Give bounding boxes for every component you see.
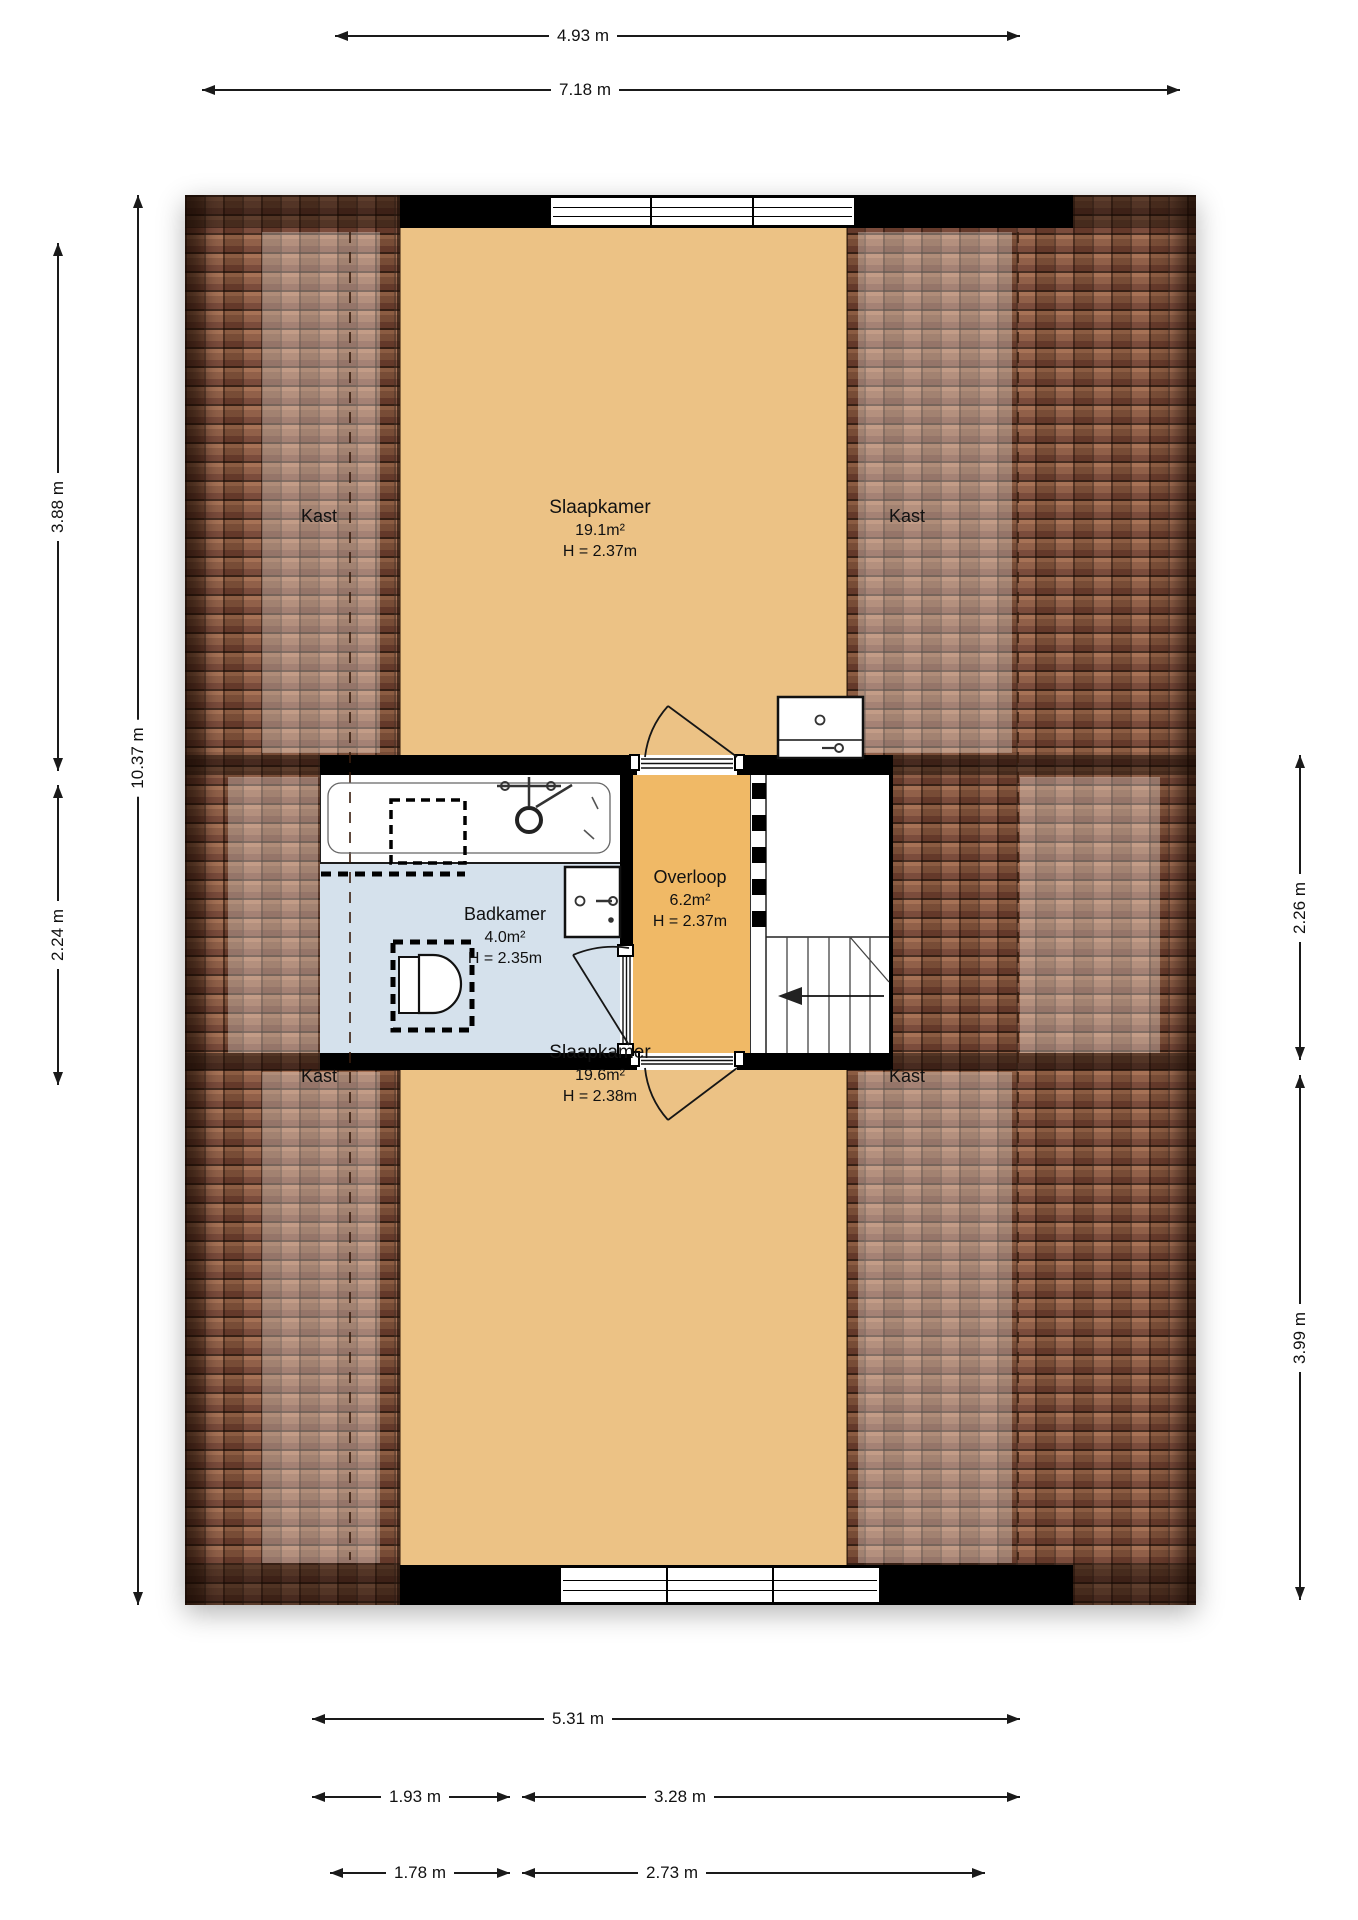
dimension-bottom-row2-left: 1.93 m (312, 1790, 510, 1804)
room-label-overloop: Overloop 6.2m² H = 2.37m (653, 866, 727, 932)
room-height: H = 2.37m (653, 911, 727, 932)
room-height: H = 2.37m (549, 541, 650, 562)
low-ceiling-dashes (321, 800, 465, 874)
dimension-left-total: 10.37 m (131, 195, 145, 1605)
dimension-top-outer: 7.18 m (202, 83, 1180, 97)
room-area: 19.6m² (549, 1065, 650, 1086)
room-label-badkamer: Badkamer 4.0m² H = 2.35m (464, 903, 546, 969)
dimension-right-middle: 2.26 m (1293, 755, 1307, 1060)
door-bottom-bedroom (645, 1068, 737, 1120)
dimension-bottom-row2-right: 3.28 m (522, 1790, 1020, 1804)
dimension-bottom-row3-left: 1.78 m (330, 1866, 510, 1880)
sink-cabinet-icon (778, 697, 863, 758)
washbasin-icon (565, 867, 620, 937)
plan-symbols-layer (0, 0, 1358, 1920)
floor-plan-page: Slaapkamer 19.1m² H = 2.37m Slaapkamer 1… (0, 0, 1358, 1920)
dimension-left-top: 3.88 m (51, 243, 65, 771)
stairs (752, 775, 889, 1053)
door-bathroom (573, 947, 629, 1045)
bathtub-fixtures-icon (328, 777, 610, 853)
room-area: 19.1m² (549, 520, 650, 541)
room-area: 6.2m² (653, 890, 727, 911)
room-label-slaapkamer-top: Slaapkamer 19.1m² H = 2.37m (549, 495, 650, 562)
dimension-top-inner: 4.93 m (335, 29, 1020, 43)
closet-label-bottom-left: Kast (301, 1066, 337, 1087)
dimension-bottom-row3-right: 2.73 m (522, 1866, 985, 1880)
toilet-icon (393, 942, 472, 1030)
dimension-bottom-row1: 5.31 m (312, 1712, 1020, 1726)
room-label-slaapkamer-bottom: Slaapkamer 19.6m² H = 2.38m (549, 1040, 650, 1107)
room-height: H = 2.38m (549, 1086, 650, 1107)
room-name: Slaapkamer (549, 495, 650, 520)
closet-label-top-left: Kast (301, 506, 337, 527)
room-height: H = 2.35m (464, 948, 546, 969)
door-top-bedroom (645, 706, 737, 757)
stairs-direction-arrow-icon (778, 987, 802, 1005)
dimension-left-middle: 2.24 m (51, 785, 65, 1085)
room-name: Badkamer (464, 903, 546, 927)
room-name: Overloop (653, 866, 727, 890)
room-name: Slaapkamer (549, 1040, 650, 1065)
closet-label-top-right: Kast (889, 506, 925, 527)
closet-label-bottom-right: Kast (889, 1066, 925, 1087)
dimension-right-bottom: 3.99 m (1293, 1075, 1307, 1600)
room-area: 4.0m² (464, 927, 546, 948)
